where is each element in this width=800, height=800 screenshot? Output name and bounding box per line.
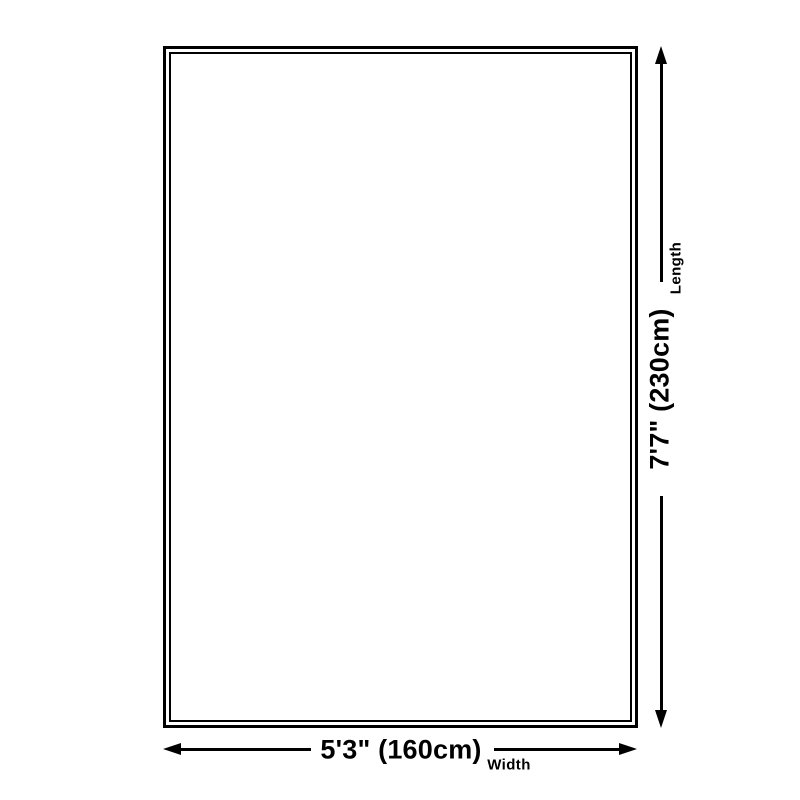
length-arrow-bottom-segment bbox=[660, 496, 663, 711]
length-label: Length bbox=[669, 242, 684, 294]
arrow-down-icon bbox=[655, 710, 667, 728]
rug-size-diagram: Length 7'7" (230cm) 5'3" (160cm) Width bbox=[0, 0, 800, 800]
width-value: 5'3" (160cm) bbox=[320, 737, 481, 764]
arrow-right-icon bbox=[619, 743, 637, 755]
arrow-up-icon bbox=[655, 46, 667, 64]
width-label: Width bbox=[487, 758, 531, 773]
rug-inner-outline bbox=[169, 52, 632, 722]
length-value: 7'7" (230cm) bbox=[647, 308, 674, 469]
width-arrow-right-segment bbox=[494, 748, 620, 751]
rug-outline bbox=[163, 46, 638, 728]
length-arrow-top-segment bbox=[660, 63, 663, 282]
width-arrow-left-segment bbox=[180, 748, 311, 751]
arrow-left-icon bbox=[163, 743, 181, 755]
